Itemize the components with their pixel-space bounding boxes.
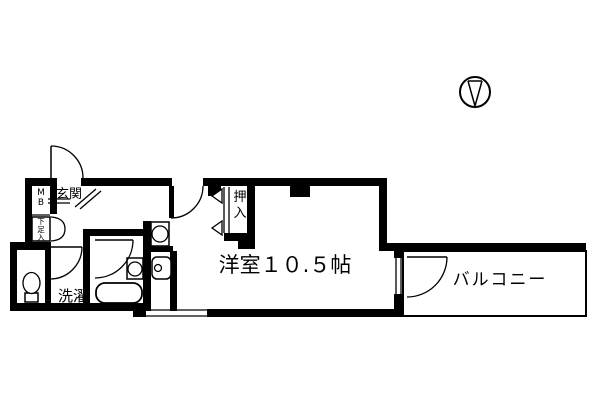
wall-left-lower bbox=[10, 242, 17, 311]
label-room: 洋室１０.５帖 bbox=[219, 253, 352, 277]
stove-burner-icon bbox=[152, 226, 168, 242]
shoebox-door-arc-2 bbox=[51, 229, 65, 241]
wall-top-main-a bbox=[81, 178, 172, 186]
label-genkan: 玄関 bbox=[56, 187, 82, 202]
wall-room-bottom-left bbox=[133, 309, 146, 317]
washroom-door-arc bbox=[50, 247, 82, 279]
closet-arrow-icon-2 bbox=[212, 221, 222, 235]
wall-strip-mid bbox=[145, 246, 173, 252]
label-oshiire: 押入 bbox=[233, 190, 246, 221]
label-sentaku: 洗濯 bbox=[58, 287, 88, 305]
room-door-leaf bbox=[169, 186, 174, 218]
bathtub-icon bbox=[96, 283, 142, 303]
wall-left-upper bbox=[25, 178, 32, 242]
wall-window-jamb-top bbox=[394, 251, 403, 258]
wall-toilet-right bbox=[45, 250, 51, 303]
wall-room-bottom bbox=[207, 309, 407, 317]
floor-plan-page: 玄関MB下足入押入洗濯洋室１０.５帖バルコニー bbox=[0, 0, 600, 400]
washbasin-drain-icon bbox=[155, 265, 162, 272]
wall-window-jamb-bottom bbox=[394, 294, 403, 310]
bath-sink-bowl-icon bbox=[128, 262, 142, 276]
entrance-door-arc bbox=[51, 146, 83, 178]
wall-closet-bottom bbox=[224, 233, 255, 241]
toilet-bowl-icon bbox=[23, 273, 40, 294]
wall-bath-right bbox=[143, 221, 151, 311]
wall-bath-top bbox=[83, 229, 150, 236]
label-shoebox: 下足入 bbox=[37, 217, 45, 242]
wall-stub-b bbox=[290, 186, 310, 197]
wall-closet-stub bbox=[238, 241, 255, 249]
wall-top-main-b bbox=[203, 178, 386, 186]
wall-closet-right bbox=[247, 178, 255, 240]
label-mb: MB bbox=[37, 188, 45, 208]
floor-plan-canvas: 玄関MB下足入押入洗濯洋室１０.５帖バルコニー bbox=[0, 0, 600, 400]
wall-balcony-top bbox=[386, 243, 586, 251]
room-door-arc bbox=[171, 186, 203, 218]
wall-room-right bbox=[379, 178, 387, 251]
shoebox-door-arc-1 bbox=[51, 217, 65, 229]
label-balcony: バルコニー bbox=[453, 270, 548, 290]
toilet-tank-icon bbox=[25, 293, 38, 302]
